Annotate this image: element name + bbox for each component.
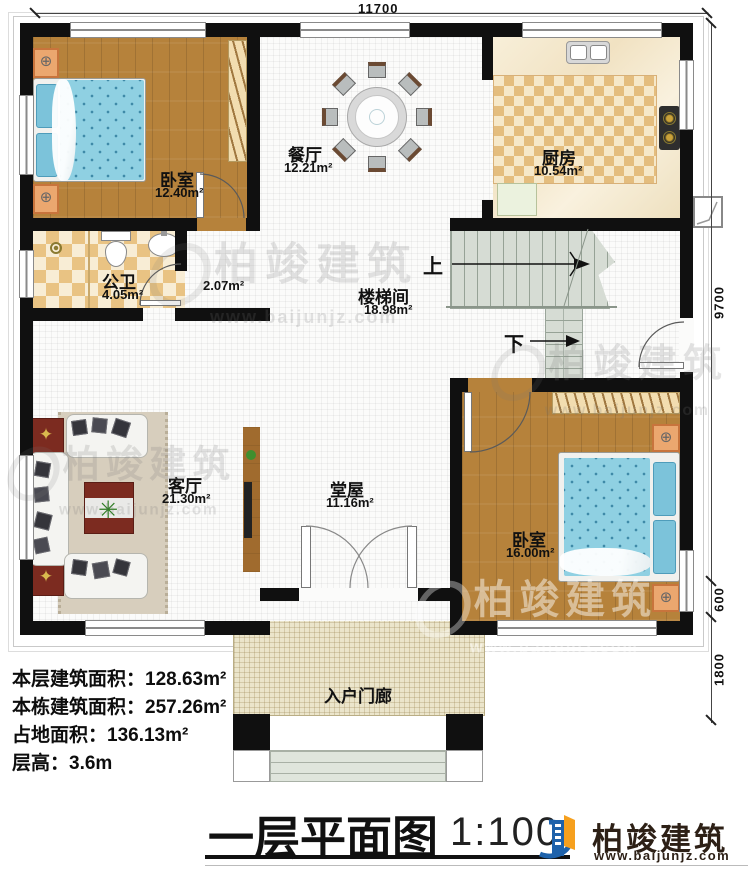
window [300, 22, 410, 38]
bedroom2-area: 16.00m² [506, 545, 554, 560]
bed2-sheet [560, 548, 652, 576]
porch-pillar-left [233, 714, 270, 750]
bathroom-door-leaf [140, 300, 181, 306]
shower-divider [88, 231, 90, 308]
window [679, 550, 694, 612]
bedroom1-door-gap [197, 218, 246, 231]
tv-screen [244, 482, 252, 538]
kitchen-area: 10.54m² [534, 163, 582, 178]
window [19, 250, 34, 298]
dining-chair [368, 156, 386, 172]
wall-kitchen-west-bottom [482, 200, 493, 218]
bedroom2-wardrobe [552, 392, 680, 414]
coffee-table: ✳ [84, 482, 134, 534]
toilet-tank [101, 231, 131, 241]
nightstand: ⊕ [652, 584, 680, 612]
sofa-pillow [71, 559, 88, 576]
stat-total-area: 本栋建筑面积：257.26m² [12, 692, 226, 719]
sofa-pillow [92, 561, 111, 580]
porch-steps [270, 750, 446, 782]
bathroom-area: 4.05m² [102, 287, 143, 302]
nightstand: ⊕ [33, 184, 59, 214]
sofa-pillow [91, 417, 107, 433]
kitchen-sink [566, 41, 610, 64]
stat-storey-height: 层高：3.6m [12, 748, 112, 775]
sink-basin [570, 45, 587, 60]
dining-area: 12.21m² [284, 160, 332, 175]
stair-landing-edge [446, 306, 617, 308]
vestibule-area: 2.07m² [203, 278, 244, 293]
window [679, 60, 694, 130]
sink-basin [590, 45, 607, 60]
porch-label: 入户门廊 [324, 682, 392, 707]
bedroom1-wardrobe [228, 40, 247, 162]
window [522, 22, 662, 38]
bedroom2-door-gap [468, 378, 532, 392]
title-underline [205, 855, 570, 859]
nightstand: ⊕ [652, 424, 680, 452]
sink-faucet [161, 231, 167, 236]
fridge [497, 183, 537, 216]
porch-pillar-right [446, 714, 483, 750]
nightstand: ⊕ [33, 48, 59, 78]
stat-floor-area: 本层建筑面积：128.63m² [12, 664, 226, 691]
dining-table [347, 87, 407, 147]
stair-up-label: 上 [423, 250, 443, 279]
entry-door-leaf-left [301, 526, 311, 588]
shower-drain [50, 242, 62, 254]
wall-bathroom-south-left [20, 308, 143, 321]
window [85, 620, 205, 636]
hall-area: 11.16m² [326, 495, 374, 510]
window [70, 22, 206, 38]
floor-plan-canvas: ✦ ✦ ✳ ⊕ ⊕ [0, 0, 750, 879]
window [19, 455, 34, 560]
porch-pillar-base-right [446, 750, 483, 782]
dim-bay: 600 [712, 582, 727, 618]
wall-kitchen-west-top [482, 37, 493, 80]
sofa-pillow [34, 461, 51, 478]
brand-logo-icon [534, 810, 588, 868]
bedroom1-area: 12.40m² [155, 185, 203, 200]
living-area: 21.30m² [162, 491, 210, 506]
stove [659, 106, 680, 150]
porch-pillar-base-left [233, 750, 270, 782]
stair-flight-up [450, 228, 615, 309]
window [497, 620, 657, 636]
stat-footprint: 占地面积：136.13m² [12, 720, 188, 747]
dim-width: 11700 [358, 1, 398, 16]
wall-bedroom1-east [247, 37, 260, 231]
wall-kitchen-south [450, 218, 693, 231]
dining-chair [416, 108, 432, 126]
corner-table-top: ✦ [28, 418, 64, 454]
brand-url: www.baijunjz.com [594, 848, 730, 863]
sofa-pillow [33, 486, 49, 502]
entry-door-gap [299, 588, 418, 601]
wall-bathroom-east-stub [175, 231, 187, 271]
bed1-sheet [52, 79, 76, 181]
stair-hall-area: 18.98m² [364, 302, 412, 317]
stair-down-label: 下 [504, 328, 524, 357]
stair-flight-down [545, 308, 583, 382]
dining-chair [368, 62, 386, 78]
entry-door-leaf-right [407, 526, 417, 588]
plant-icon: ✳ [98, 496, 118, 525]
lazy-susan [369, 109, 385, 125]
dim-height: 9700 [712, 281, 727, 325]
bay-window-glass [695, 198, 721, 226]
window [19, 95, 34, 175]
tv-plant-icon [246, 450, 256, 460]
dim-porch: 1800 [712, 648, 727, 692]
bed2-pillow [653, 462, 676, 516]
side-door-leaf [639, 362, 684, 369]
wall-bedroom2-west [450, 378, 462, 635]
burner [663, 112, 676, 125]
bay-window [693, 196, 723, 228]
title-underline-thin [205, 865, 748, 866]
burner [663, 131, 676, 144]
sofa-pillow [71, 419, 88, 436]
bed2-pillow [653, 520, 676, 574]
dining-chair [322, 108, 338, 126]
wall-vestibule-south [175, 308, 270, 321]
sofa-pillow [33, 537, 51, 555]
bedroom2-door-leaf [464, 392, 472, 452]
